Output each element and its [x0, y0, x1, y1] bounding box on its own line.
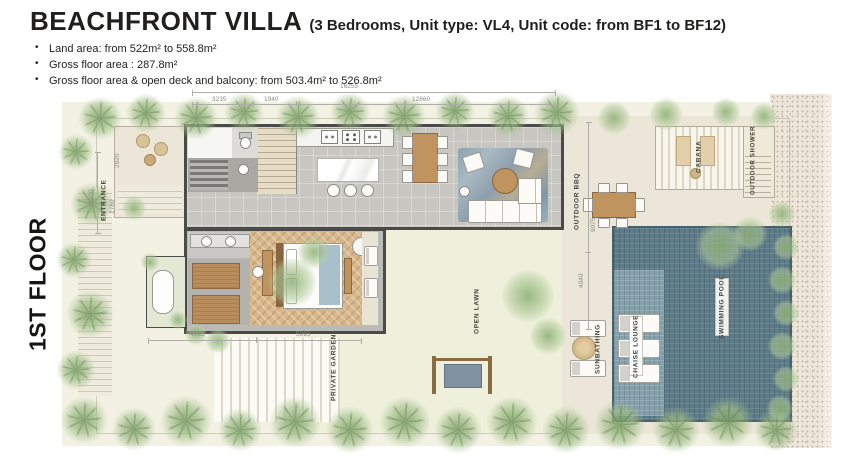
- private-garden-label: PRIVATE GARDEN: [329, 340, 339, 396]
- outdoor-chair: [598, 218, 610, 228]
- dim-line-left: [97, 152, 98, 234]
- bed-headboard: [276, 243, 283, 307]
- outdoor-chair: [616, 183, 628, 193]
- spec-gross-floor-deck: Gross floor area & open deck and balcony…: [32, 74, 726, 90]
- terrace-table: [144, 154, 156, 166]
- swing-post: [488, 356, 492, 394]
- page: BEACHFRONT VILLA(3 Bedrooms, Unit type: …: [0, 0, 846, 461]
- pantry-room: [188, 128, 233, 158]
- pillow: [286, 249, 297, 275]
- page-subtitle: (3 Bedrooms, Unit type: VL4, Unit code: …: [309, 17, 726, 34]
- outdoor-dining-table: [592, 192, 636, 218]
- outdoor-chair: [635, 198, 645, 212]
- sunbathing-label: SUNBATHING: [593, 324, 603, 374]
- floor-level-label: 1ST FLOOR: [24, 234, 52, 334]
- dining-chair: [402, 170, 413, 183]
- entrance-steps: [118, 186, 182, 214]
- dim-tick: [256, 337, 257, 343]
- entrance-label: ENTRANCE: [99, 178, 109, 222]
- kitchen-island: [317, 158, 379, 182]
- bar-stool: [361, 184, 374, 197]
- chaise-lounge-label: CHAISE LOUNGE: [629, 316, 643, 376]
- spec-land-area: Land area: from 522m² to 558.8m²: [32, 42, 726, 58]
- spec-gross-floor-area: Gross floor area : 287.8m²: [32, 58, 726, 74]
- dim-tick: [585, 252, 591, 253]
- swing-post: [432, 356, 436, 394]
- dim-tick: [253, 101, 254, 107]
- sofa-chaise: [518, 178, 542, 204]
- header: BEACHFRONT VILLA(3 Bedrooms, Unit type: …: [30, 6, 726, 90]
- cabana-lounger: [676, 136, 691, 166]
- outdoor-chair: [616, 218, 628, 228]
- spec-list: Land area: from 522m² to 558.8m² Gross f…: [32, 42, 726, 90]
- beach-sand-fade: [818, 94, 846, 448]
- staircase: [258, 128, 297, 194]
- closet-shelving: [190, 160, 228, 190]
- double-vanity: [190, 234, 250, 248]
- dim-terrace-depth: 2920: [115, 144, 122, 168]
- deck-lounger: [364, 246, 378, 266]
- dining-chair: [437, 136, 448, 149]
- side-table: [459, 186, 470, 197]
- desk-chair: [252, 266, 264, 278]
- vanity-sink: [225, 236, 236, 247]
- dim-line-right: [588, 122, 589, 330]
- dim-tick: [296, 101, 297, 107]
- dim-bottom-2: 5095: [296, 332, 310, 339]
- open-lawn-label: OPEN LAWN: [472, 286, 482, 336]
- page-title: BEACHFRONT VILLA: [30, 6, 302, 36]
- dining-chair: [402, 153, 413, 166]
- outdoor-bbq-label: OUTDOOR BBQ: [572, 172, 582, 230]
- bed-throw-blanket: [319, 245, 340, 305]
- toilet-bowl: [240, 137, 251, 149]
- vanity-sink: [201, 236, 212, 247]
- deck-lounger: [364, 278, 378, 298]
- wardrobe: [192, 263, 240, 289]
- wardrobe: [192, 295, 240, 324]
- kitchen-sink-icon: [321, 130, 338, 144]
- dim-line-segments: [192, 104, 556, 105]
- oven-icon: [364, 130, 381, 144]
- dim-right-lower: 4040: [579, 262, 586, 288]
- pillow: [286, 278, 297, 304]
- dim-left-side: 8070: [89, 178, 96, 204]
- private-garden-pavers: [214, 338, 340, 422]
- dining-table: [412, 133, 438, 183]
- dining-chair: [437, 170, 448, 183]
- dim-right-upper: 9075: [591, 204, 598, 232]
- bar-stool: [327, 184, 340, 197]
- dim-top-2: 1940: [264, 97, 278, 104]
- bar-stool: [344, 184, 357, 197]
- bathtub: [152, 270, 174, 314]
- swimming-pool-label: SWIMMING POOL: [715, 278, 729, 336]
- dim-top-1: 3235: [212, 97, 226, 104]
- outdoor-chair: [598, 183, 610, 193]
- dining-chair: [437, 153, 448, 166]
- dim-entrance-width: 1780: [110, 190, 117, 214]
- title-row: BEACHFRONT VILLA(3 Bedrooms, Unit type: …: [30, 6, 726, 37]
- swing-daybed: [444, 364, 482, 388]
- dining-chair: [402, 136, 413, 149]
- dim-bottom-1: 4785: [190, 332, 204, 339]
- dim-top-3: 12860: [412, 97, 430, 104]
- terrace-chair: [136, 134, 150, 148]
- dim-line-overall: [192, 92, 556, 93]
- coffee-table: [492, 168, 518, 194]
- washbasin: [238, 164, 249, 175]
- swing-beam: [432, 358, 492, 361]
- stove-icon: [342, 130, 360, 144]
- bed-bench: [344, 258, 352, 294]
- outdoor-shower-label: OUTDOOR SHOWER: [749, 127, 759, 193]
- terrace-chair: [154, 142, 168, 156]
- cabana-label: CABANA: [694, 134, 704, 180]
